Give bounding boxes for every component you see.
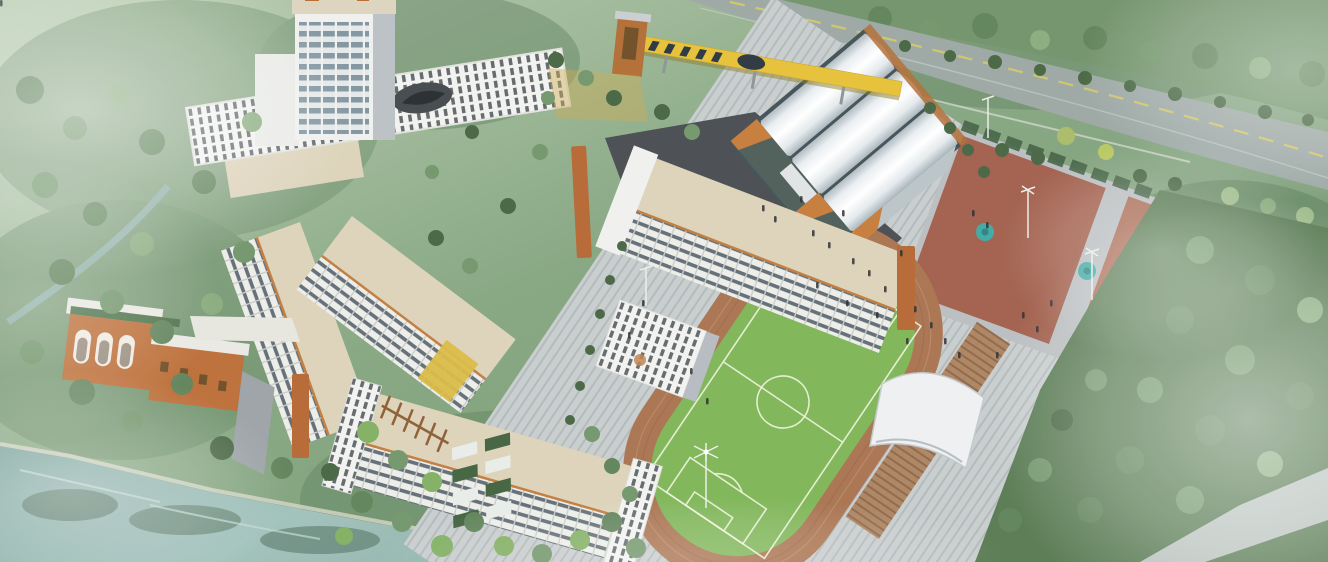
scene-canvas (0, 0, 1328, 562)
mist-haze (0, 0, 1328, 562)
campus-aerial-rendering (0, 0, 1328, 562)
